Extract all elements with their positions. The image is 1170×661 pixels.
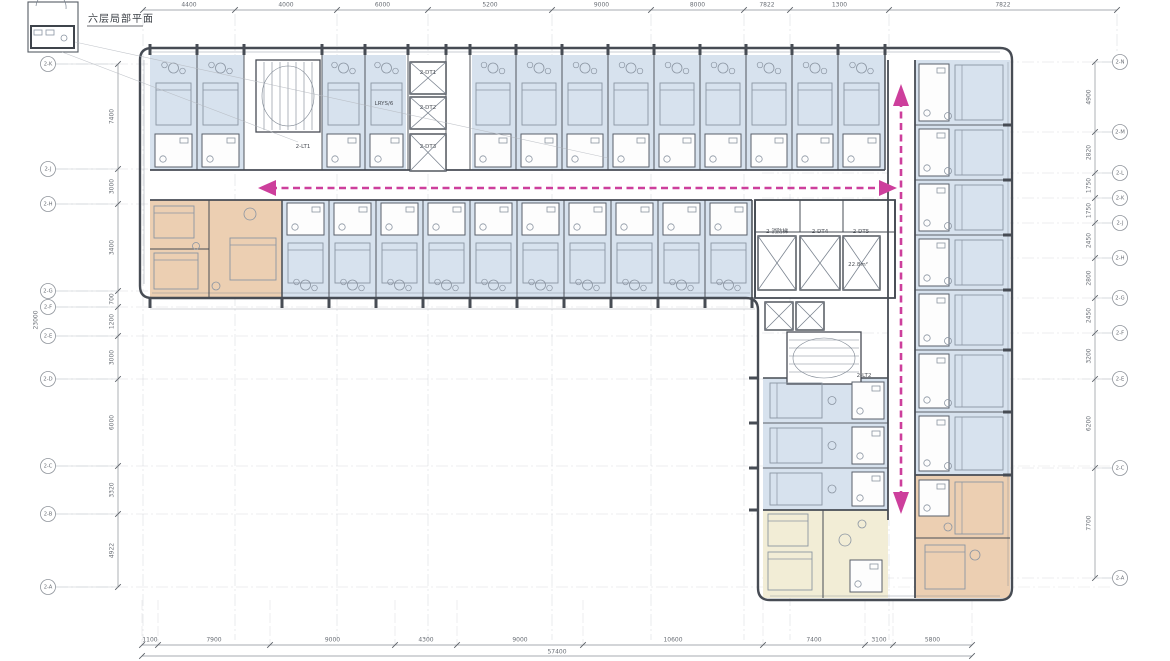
dim-label: 7700 [1086,515,1093,530]
balcony-tick [364,44,367,55]
balcony-tick [610,297,613,308]
grid-bubble-label: 2-D [43,377,52,383]
dim-label: 3400 [109,240,116,255]
drawing-title: 六层局部平面 [88,12,154,25]
balcony-tick [515,44,518,55]
balcony-tick [1003,349,1012,352]
dim-label: 4400 [181,2,196,9]
bathroom [843,134,880,167]
dim-label: 2450 [1086,233,1093,248]
plan-annotation: 2-LT2 [857,373,872,379]
grid-bubble-label: 2-K [1116,196,1125,202]
balcony-tick [791,44,794,55]
bathroom [850,560,882,592]
dim-label: 4900 [1086,89,1093,104]
bathroom [327,134,360,167]
bathroom [569,203,606,235]
dim-label: 4300 [418,637,433,644]
grid-bubble-label: 2-A [1116,576,1125,582]
bathroom [659,134,695,167]
balcony-tick [563,297,566,308]
dim-label: 4000 [278,2,293,9]
grid-bubble-label: 2-J [1117,221,1124,227]
balcony-tick [516,297,519,308]
bathroom [334,203,371,235]
dim-label: 1750 [1086,178,1093,193]
grid-bubble-label: 2-B [44,512,53,518]
balcony-tick [281,297,284,308]
balcony-tick [749,422,759,425]
bathroom [428,203,465,235]
dim-label: 7900 [206,637,221,644]
balcony-tick [607,44,610,55]
grid-bubble-label: 2-F [44,305,52,311]
balcony-tick [321,44,324,55]
balcony-tick [749,509,759,512]
grid-bubble-label: 2-E [1116,377,1124,383]
balcony-tick [749,377,759,380]
grid-bubble-label: 2-J [45,167,52,173]
floor-plan-drawing: 4400400060005200900080007822130078221100… [0,0,1170,661]
plan-annotation: 2-DT2 [420,105,437,111]
balcony-tick [745,44,748,55]
balcony-tick [1003,474,1012,477]
bathroom [616,203,653,235]
balcony-tick [375,297,378,308]
dim-label: 5800 [925,637,940,644]
balcony-tick [1003,234,1012,237]
bathroom [663,203,700,235]
balcony-tick [1003,289,1012,292]
dim-label: 6000 [109,415,116,430]
balcony-tick [657,297,660,308]
grid-bubble-label: 2-G [1115,296,1124,302]
dim-label: 3320 [109,482,116,497]
balcony-tick [1003,411,1012,414]
dim-label: 1200 [109,314,116,329]
plan-annotation: LRYS/6 [375,101,394,107]
balcony-tick [749,467,759,470]
balcony-tick [149,297,152,308]
balcony-tick [751,297,754,308]
bathroom [475,134,511,167]
balcony-tick [653,44,656,55]
grid-bubble-label: 2-A [44,585,53,591]
bathroom [705,134,741,167]
bathroom [521,134,557,167]
bathroom [370,134,403,167]
bathroom [919,129,949,176]
bathroom [852,382,884,419]
grid-bubble-label: 2-F [1116,331,1124,337]
dim-label: 7400 [109,109,116,124]
dim-label: 7822 [759,2,774,9]
grid-bubble-label: 2-H [43,202,52,208]
grid-bubble-label: 2-H [1115,256,1124,262]
plan-annotation: 2-DT3 [420,144,437,150]
bathroom [202,134,239,167]
bathroom [919,239,949,286]
balcony-tick [196,44,199,55]
plan-annotation: 2-DT4 [812,229,829,235]
dim-total-label: 23000 [33,310,40,329]
balcony-tick [407,44,410,55]
balcony-tick [704,297,707,308]
dim-label: 3000 [109,350,116,365]
floorplan-page: 4400400060005200900080007822130078221100… [0,0,1170,661]
balcony-tick [699,44,702,55]
balcony-tick [469,44,472,55]
dim-label: 2800 [1086,270,1093,285]
balcony-tick [149,44,152,55]
dim-label: 7822 [995,2,1010,9]
balcony-tick [837,44,840,55]
dim-label: 5200 [482,2,497,9]
dim-label: 6200 [1086,416,1093,431]
dim-label: 3200 [1086,348,1093,363]
dim-label: 1300 [832,2,847,9]
balcony-tick [328,297,331,308]
grid-bubble-label: 2-M [1115,130,1125,136]
bathroom [613,134,649,167]
bathroom [710,203,747,235]
grid-bubble-label: 2-E [44,334,52,340]
grid-bubble-label: 2-C [1116,466,1125,472]
bathroom [852,427,884,464]
dim-label: 2450 [1086,308,1093,323]
dim-label: 4922 [109,543,116,558]
bathroom [475,203,512,235]
plan-annotation: 2-LT1 [296,144,311,150]
arrowhead [258,180,276,196]
bathroom [155,134,192,167]
plan-annotation: 2-消防梯 [766,227,788,235]
bathroom [381,203,418,235]
plan-annotation: 2-DT5 [853,229,870,235]
balcony-tick [884,44,887,55]
balcony-tick [1003,179,1012,182]
bathroom [522,203,559,235]
bathroom [751,134,787,167]
balcony-tick [445,44,448,55]
bathroom [797,134,833,167]
dim-label: 9000 [594,2,609,9]
balcony-tick [422,297,425,308]
plan-annotation: 22.8m² [848,261,868,268]
dim-label: 1750 [1086,203,1093,218]
grid-bubble-label: 2-C [44,464,53,470]
dim-label: 6000 [375,2,390,9]
grid-bubble-label: 2-L [1116,171,1124,177]
dim-label: 3100 [871,637,886,644]
grid-bubble-label: 2-G [43,289,52,295]
bathroom [919,184,949,231]
balcony-tick [469,297,472,308]
grid-bubble-label: 2-N [1115,60,1124,66]
dim-label: 10600 [663,637,682,644]
plan-annotation: 2-DT1 [420,70,437,76]
dim-label: 2820 [1086,145,1093,160]
bathroom [287,203,324,235]
balcony-tick [1003,124,1012,127]
dim-label: 9000 [325,637,340,644]
dim-total-label: 57400 [547,649,566,656]
dim-label: 1100 [142,637,157,644]
dim-label: 9000 [512,637,527,644]
dim-label: 3000 [109,179,116,194]
dim-label: 7400 [806,637,821,644]
bathroom [852,472,884,506]
balcony-tick [243,44,246,55]
balcony-tick [561,44,564,55]
bathroom [919,480,949,516]
dim-label: 700 [109,293,116,305]
dim-label: 8000 [690,2,705,9]
grid-bubble-label: 2-K [44,62,53,68]
